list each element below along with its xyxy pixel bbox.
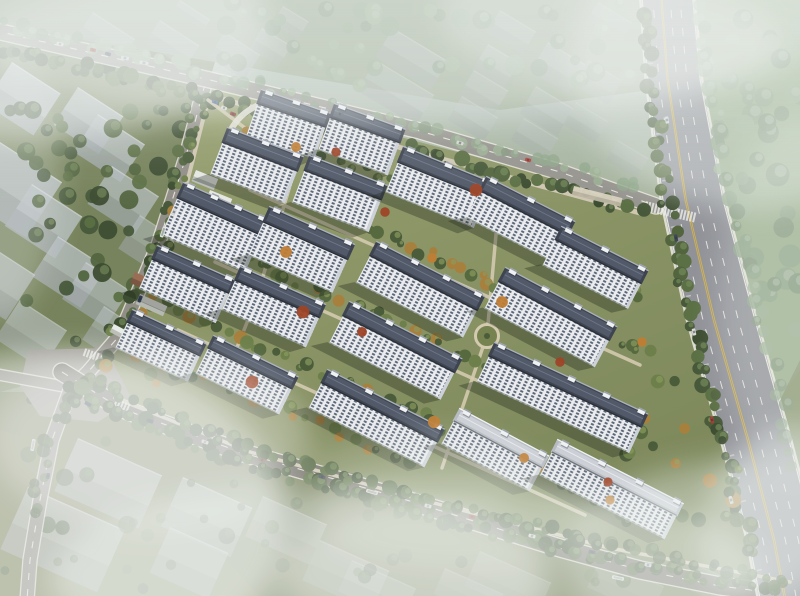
aerial-scene-svg (0, 0, 800, 596)
rendering-canvas (0, 0, 800, 596)
layer-veil (0, 0, 800, 596)
atmospheric-veil (0, 0, 800, 596)
